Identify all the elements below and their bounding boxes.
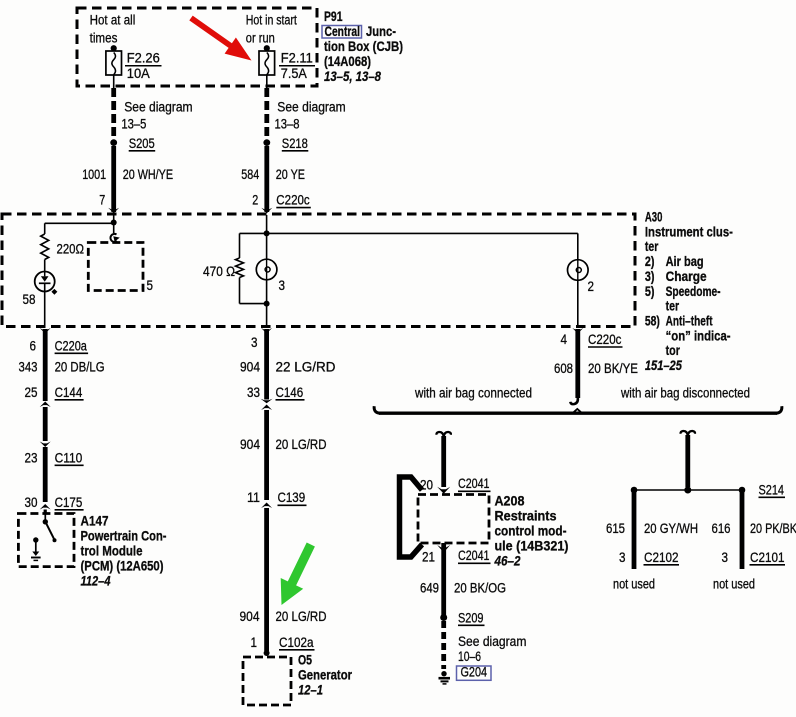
svg-text:46–2: 46–2 [494, 554, 521, 569]
svg-text:4: 4 [561, 332, 568, 347]
svg-text:Speedome-: Speedome- [666, 284, 721, 299]
svg-text:904: 904 [240, 437, 260, 452]
svg-text:20 LG/RD: 20 LG/RD [276, 437, 327, 452]
svg-text:Central: Central [325, 24, 361, 39]
svg-text:1001: 1001 [82, 167, 106, 182]
svg-text:C175: C175 [55, 495, 83, 510]
svg-text:Instrument clus-: Instrument clus- [645, 224, 733, 239]
svg-text:Generator: Generator [298, 668, 353, 683]
svg-text:C2102: C2102 [644, 550, 679, 565]
svg-text:584: 584 [241, 167, 259, 182]
svg-text:See diagram: See diagram [458, 634, 526, 649]
svg-text:3: 3 [251, 335, 258, 350]
svg-text:C2041: C2041 [458, 548, 490, 563]
svg-text:C220c: C220c [588, 332, 622, 347]
svg-text:S209: S209 [458, 611, 484, 626]
svg-text:Powertrain Con-: Powertrain Con- [81, 529, 167, 544]
svg-text:470 Ω: 470 Ω [203, 264, 235, 279]
svg-text:control mod-: control mod- [495, 524, 567, 539]
svg-text:58: 58 [23, 292, 36, 307]
svg-text:649: 649 [420, 581, 439, 596]
svg-text:11: 11 [247, 490, 260, 505]
svg-text:not used: not used [713, 577, 755, 592]
svg-text:ter: ter [666, 299, 680, 314]
svg-text:Charge: Charge [666, 269, 707, 284]
svg-text:22 LG/RD: 22 LG/RD [276, 360, 336, 375]
svg-text:616: 616 [712, 521, 731, 536]
svg-text:1: 1 [251, 635, 258, 650]
svg-text:Hot at all: Hot at all [90, 13, 136, 28]
svg-text:7: 7 [99, 193, 105, 208]
svg-text:904: 904 [240, 609, 260, 624]
svg-text:3): 3) [645, 269, 655, 284]
svg-text:Hot in start: Hot in start [246, 13, 297, 28]
svg-text:C146: C146 [276, 385, 304, 400]
svg-text:13–5, 13–8: 13–5, 13–8 [324, 69, 381, 84]
svg-text:20 YE: 20 YE [276, 167, 305, 182]
svg-text:2: 2 [588, 279, 595, 294]
svg-text:2: 2 [252, 193, 258, 208]
svg-text:or run: or run [246, 31, 275, 46]
svg-text:615: 615 [606, 521, 625, 536]
svg-text:Anti–theft: Anti–theft [666, 313, 713, 328]
svg-text:608: 608 [554, 361, 573, 376]
svg-text:33: 33 [247, 385, 260, 400]
svg-text:10A: 10A [127, 66, 150, 81]
svg-text:not used: not used [613, 577, 655, 592]
svg-text:ter: ter [645, 239, 659, 254]
svg-text:13–8: 13–8 [275, 117, 300, 132]
svg-text:Air bag: Air bag [666, 254, 704, 269]
svg-text:F2.26: F2.26 [127, 51, 160, 66]
svg-text:A147: A147 [81, 514, 109, 529]
svg-text:C144: C144 [55, 385, 83, 400]
svg-text:151–25: 151–25 [645, 358, 682, 373]
svg-text:58): 58) [645, 313, 660, 328]
svg-text:6: 6 [30, 339, 37, 354]
svg-text:with air bag disconnected: with air bag disconnected [620, 386, 750, 401]
svg-text:“on” indica-: “on” indica- [666, 328, 731, 343]
svg-text:F2.11: F2.11 [281, 51, 313, 66]
svg-text:21: 21 [422, 550, 435, 565]
svg-text:5): 5) [645, 284, 655, 299]
svg-text:S214: S214 [759, 483, 785, 498]
svg-text:13–5: 13–5 [121, 117, 146, 132]
svg-text:(14A068): (14A068) [324, 54, 371, 69]
svg-text:tion Box (CJB): tion Box (CJB) [324, 39, 403, 54]
svg-text:with air bag connected: with air bag connected [414, 386, 532, 401]
svg-text:12–1: 12–1 [298, 683, 323, 698]
svg-text:S205: S205 [129, 136, 155, 151]
svg-text:20 PK/BK: 20 PK/BK [750, 521, 796, 536]
svg-text:C102a: C102a [279, 635, 314, 650]
svg-text:23: 23 [25, 451, 38, 466]
svg-text:220Ω: 220Ω [57, 242, 85, 257]
svg-text:20 LG/RD: 20 LG/RD [276, 609, 327, 624]
svg-text:G204: G204 [461, 665, 488, 680]
svg-text:C110: C110 [55, 451, 83, 466]
svg-text:C220a: C220a [55, 339, 88, 354]
svg-text:20 WH/YE: 20 WH/YE [123, 167, 173, 182]
svg-text:112–4: 112–4 [81, 574, 111, 589]
svg-text:30: 30 [25, 495, 38, 510]
svg-text:C139: C139 [278, 490, 306, 505]
svg-text:343: 343 [19, 360, 38, 375]
svg-text:C220c: C220c [276, 193, 310, 208]
svg-text:C2041: C2041 [458, 476, 490, 491]
svg-text:904: 904 [240, 360, 260, 375]
svg-text:10–6: 10–6 [458, 649, 481, 664]
svg-text:(PCM) (12A650): (PCM) (12A650) [81, 559, 164, 574]
svg-text:20: 20 [420, 478, 433, 493]
svg-text:20 GY/WH: 20 GY/WH [644, 521, 698, 536]
svg-text:tor: tor [666, 343, 681, 358]
svg-text:2): 2) [645, 254, 655, 269]
svg-text:O5: O5 [298, 653, 312, 668]
svg-text:Restraints: Restraints [495, 509, 557, 524]
svg-text:25: 25 [25, 385, 38, 400]
svg-text:3: 3 [279, 278, 286, 293]
svg-text:C2101: C2101 [750, 550, 785, 565]
svg-text:7.5A: 7.5A [281, 66, 307, 81]
svg-text:A208: A208 [495, 494, 525, 509]
svg-text:20 DB/LG: 20 DB/LG [55, 360, 105, 375]
svg-text:times: times [90, 31, 118, 46]
svg-text:ule (14B321): ule (14B321) [495, 539, 569, 554]
svg-text:P91: P91 [324, 9, 343, 24]
svg-text:S218: S218 [282, 136, 308, 151]
svg-text:3: 3 [722, 550, 729, 565]
svg-text:Junc-: Junc- [366, 24, 396, 39]
svg-text:See diagram: See diagram [124, 100, 192, 115]
svg-text:5: 5 [147, 278, 154, 293]
svg-text:3: 3 [619, 550, 626, 565]
svg-text:20 BK/YE: 20 BK/YE [588, 361, 638, 376]
svg-text:20 BK/OG: 20 BK/OG [454, 581, 506, 596]
svg-text:trol Module: trol Module [81, 544, 143, 559]
svg-text:See diagram: See diagram [277, 100, 345, 115]
svg-text:A30: A30 [645, 210, 663, 225]
